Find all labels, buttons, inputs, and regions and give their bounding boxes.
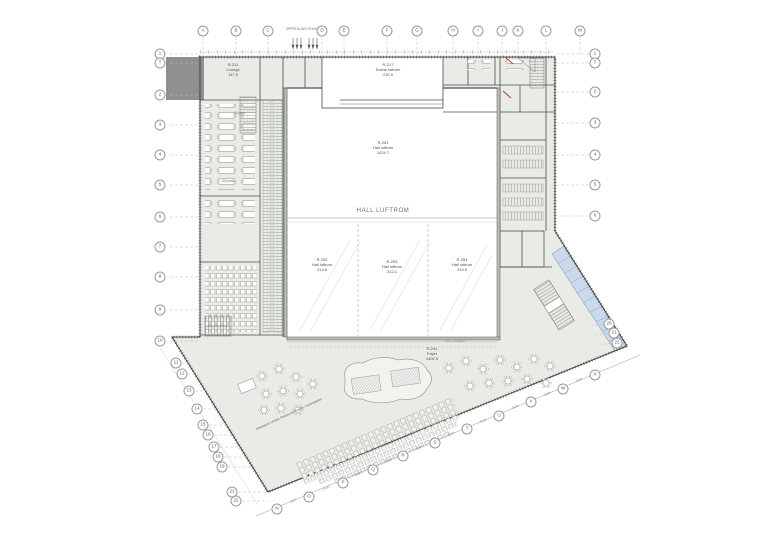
dekkegolv-note: Dekkegolv senket, Restaurant høyde i him… xyxy=(255,397,322,431)
grid-bubble-16: 16 xyxy=(203,430,214,441)
grid-bubble-8: 8 xyxy=(155,272,166,283)
grid-bubble-N: N xyxy=(272,504,283,515)
grid-bubble-P: P xyxy=(338,478,349,489)
dimension-text: 7500 xyxy=(575,377,583,383)
room-label-r251: R-251 Hall luftrom 1424.7 xyxy=(373,141,393,155)
dimension-text: 7500 xyxy=(543,391,551,397)
grid-bubble-3: 3 xyxy=(590,118,601,129)
grid-bubble-T: T xyxy=(155,58,166,69)
grid-bubble-R: R xyxy=(398,451,409,462)
grid-bubble-11: 11 xyxy=(171,358,182,369)
room-area: 1402.5 xyxy=(426,356,438,361)
room-area: 1424.7 xyxy=(373,150,393,155)
floor-plan-canvas: R-211 Lounge 117.5 R-217 Scene luftrom 2… xyxy=(0,0,768,542)
grid-bubble-A: A xyxy=(198,26,209,37)
dimension-text: 7500 xyxy=(289,498,297,504)
pers-100-label: 100 pers. xyxy=(221,179,234,183)
grid-bubble-5: 5 xyxy=(590,180,601,191)
room-label-r211: R-211 Lounge 117.5 xyxy=(226,63,239,77)
grid-bubble-X: X xyxy=(590,370,601,381)
grid-bubble-12: 12 xyxy=(177,369,188,380)
grid-bubble-U: U xyxy=(494,411,505,422)
room-area: 117.5 xyxy=(226,72,239,77)
grid-bubble-S: S xyxy=(430,438,441,449)
grid-bubble-13: 13 xyxy=(184,386,195,397)
room-label-r253: R-253 Hall luftrom 312.1 xyxy=(382,260,402,274)
room-label-r217: R-217 Scene luftrom 232.9 xyxy=(376,63,401,77)
grid-bubble-E: E xyxy=(339,26,350,37)
dimension-text: 7500 xyxy=(354,471,362,477)
grid-bubble-D: D xyxy=(317,26,328,37)
grid-bubble-19: 19 xyxy=(217,462,228,473)
room-area: 312.1 xyxy=(382,269,402,274)
grid-bubble-2: 2 xyxy=(590,87,601,98)
dimension-text: 7500 xyxy=(415,445,423,451)
room-label-r241: R-241 Foyer 1402.5 xyxy=(426,347,438,361)
dim-note: Dim. (område) xyxy=(445,339,464,343)
grid-bubble-C: C xyxy=(263,26,274,37)
dimension-text: 7500 xyxy=(479,418,487,424)
dimension-text: 7500 xyxy=(322,485,330,491)
grid-bubble-9: 9 xyxy=(155,305,166,316)
grid-bubble-H: H xyxy=(448,26,459,37)
grid-bubble-5: 5 xyxy=(155,180,166,191)
grid-bubble-G: G xyxy=(412,26,423,37)
grid-bubble-I: I xyxy=(473,26,484,37)
oppstilling-sykkel-label: OPPSTILLING SYKKEL xyxy=(286,27,320,31)
dimension-text: 7500 xyxy=(447,431,455,437)
grid-bubble-14: 14 xyxy=(192,404,203,415)
grid-bubble-T: T xyxy=(590,58,601,69)
grid-bubble-3: 3 xyxy=(155,120,166,131)
label-overlay: R-211 Lounge 117.5 R-217 Scene luftrom 2… xyxy=(0,0,768,542)
grid-bubble-4: 4 xyxy=(155,150,166,161)
grid-bubble-V: V xyxy=(526,397,537,408)
grid-bubble-6: 6 xyxy=(155,212,166,223)
room-area: 232.9 xyxy=(376,72,401,77)
grid-bubble-J: J xyxy=(497,26,508,37)
grid-bubble-22: 22 xyxy=(231,496,242,507)
grid-bubble-B: B xyxy=(231,26,242,37)
room-label-r252: R-252 Hall luftrom 314.6 xyxy=(312,258,332,272)
room-label-r254: R-254 Hall luftrom 314.5 xyxy=(452,258,472,272)
grid-bubble-F: F xyxy=(382,26,393,37)
grid-bubble-10: 10 xyxy=(155,336,166,347)
grid-bubble-M: M xyxy=(575,26,586,37)
grid-bubble-6: 6 xyxy=(590,211,601,222)
room-area: 314.5 xyxy=(452,267,472,272)
grid-bubble-L: L xyxy=(541,26,552,37)
grid-bubble-K: K xyxy=(513,26,524,37)
room-area: 314.6 xyxy=(312,267,332,272)
grid-bubble-T: T xyxy=(462,424,473,435)
note-line-1: Dekkegolv senket, Restaurant xyxy=(255,410,295,432)
pers-50-label: 50 pers. xyxy=(234,111,246,115)
note-line-2: høyde i himlingsplan xyxy=(295,397,323,413)
grid-bubble-W: W xyxy=(558,384,569,395)
dimension-text: 7500 xyxy=(384,458,392,464)
grid-bubble-Q: Q xyxy=(368,465,379,476)
hall-luftrom-label: HALL LUFTROM xyxy=(357,208,410,214)
grid-bubble-22: 22 xyxy=(612,338,623,349)
dimension-text: 7500 xyxy=(511,404,519,410)
grid-bubble-O: O xyxy=(304,492,315,503)
grid-bubble-7: 7 xyxy=(155,242,166,253)
grid-bubble-2: 2 xyxy=(155,90,166,101)
grid-bubble-4: 4 xyxy=(590,150,601,161)
